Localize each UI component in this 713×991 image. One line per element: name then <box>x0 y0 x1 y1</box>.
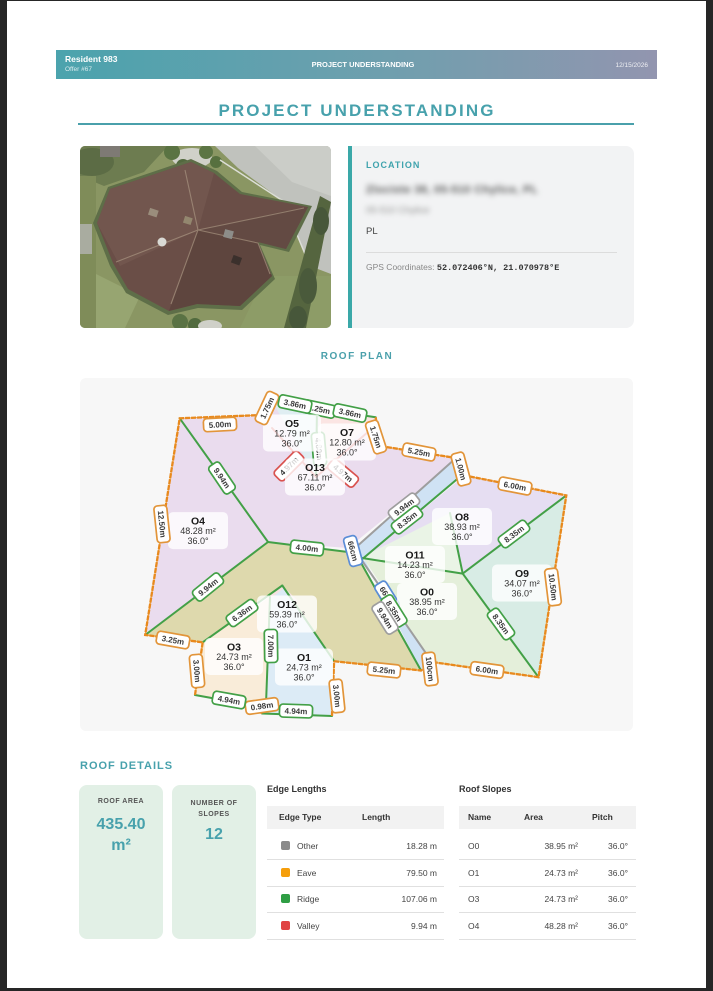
svg-text:34.07 m²: 34.07 m² <box>504 578 540 588</box>
svg-text:36.0°: 36.0° <box>404 570 426 580</box>
svg-text:5.00m: 5.00m <box>208 420 231 430</box>
svg-text:36.0°: 36.0° <box>187 536 209 546</box>
svg-text:48.28 m²: 48.28 m² <box>180 526 216 536</box>
svg-text:14.23 m²: 14.23 m² <box>397 560 433 570</box>
svg-text:36.0°: 36.0° <box>293 673 315 683</box>
svg-text:36.0°: 36.0° <box>416 607 438 617</box>
svg-text:24.73 m²: 24.73 m² <box>286 662 322 672</box>
svg-text:67.11 m²: 67.11 m² <box>298 472 333 482</box>
svg-text:36.0°: 36.0° <box>223 662 245 672</box>
svg-text:36.0°: 36.0° <box>304 483 326 493</box>
svg-text:24.73 m²: 24.73 m² <box>216 652 252 662</box>
svg-text:36.0°: 36.0° <box>276 620 298 630</box>
svg-text:12.80 m²: 12.80 m² <box>329 437 365 447</box>
svg-text:59.39 m²: 59.39 m² <box>269 609 305 619</box>
svg-text:7.00m: 7.00m <box>266 635 275 658</box>
svg-text:12.79 m²: 12.79 m² <box>274 428 310 438</box>
svg-text:36.0°: 36.0° <box>336 448 358 458</box>
svg-text:36.0°: 36.0° <box>511 589 533 599</box>
svg-text:36.0°: 36.0° <box>281 439 303 449</box>
svg-text:36.0°: 36.0° <box>451 532 473 542</box>
svg-text:4.94m: 4.94m <box>284 707 307 717</box>
svg-text:38.93 m²: 38.93 m² <box>444 522 480 532</box>
svg-text:38.95 m²: 38.95 m² <box>409 597 445 607</box>
